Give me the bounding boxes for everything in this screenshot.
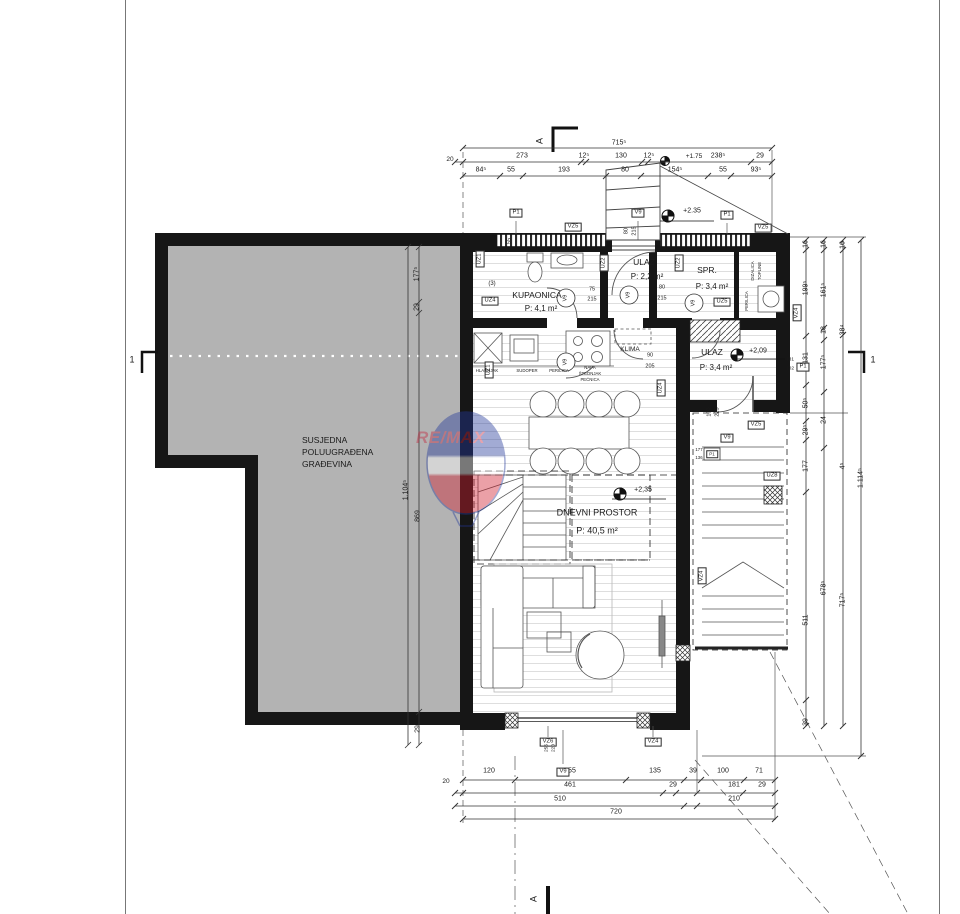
small-dim-label: 80 [624, 228, 630, 234]
dim-label: 20 [446, 157, 453, 164]
dim-label: 715⁵ [612, 140, 627, 147]
section-label: 1 [870, 356, 875, 365]
dim-label: 29⁵ [803, 425, 810, 436]
dim-label: 717⁵ [840, 593, 847, 608]
dim-label: 4⁵ [840, 463, 847, 470]
dim-label: 678⁵ [821, 581, 828, 596]
dim-label: 135 [649, 768, 661, 775]
dim-label: 177⁵ [414, 267, 421, 282]
room-label: ULAZ [633, 258, 655, 267]
dim-label: 154⁵ [668, 167, 683, 174]
room-label: P: 2,2 m² [631, 273, 663, 281]
dim-label: 84⁵ [476, 167, 487, 174]
dim-label: 71 [755, 768, 763, 775]
small-dim-label: 75 [589, 287, 595, 293]
dim-label: 93⁵ [751, 167, 762, 174]
dim-label: 869 [415, 510, 422, 522]
small-dim-label: 215 [632, 226, 638, 235]
fixture-label: ŠTEDNJAK [579, 372, 601, 376]
dim-label: 16 [840, 241, 847, 249]
dim-label: 29 [758, 782, 766, 789]
dim-label: 461 [564, 782, 576, 789]
box-label: VZ4 [645, 738, 662, 747]
neighbor-building-label: POLUUGRAĐENA [302, 448, 373, 457]
door-tag-label: V9 [563, 359, 569, 366]
box-label: UZ4 [482, 297, 499, 306]
dim-label: 24 [821, 416, 828, 424]
box-label: UZ2 [675, 255, 684, 272]
dim-label: 18 [821, 326, 828, 334]
small-dim-label: 255 [546, 744, 551, 752]
elevation-label: +2,09 [749, 348, 767, 355]
dim-label: 181 [728, 782, 740, 789]
small-dim-label: 80 [659, 285, 665, 291]
fixture-label: PERILICA [549, 369, 569, 373]
section-label: 1 [129, 356, 134, 365]
floor-plan-page: RE/MAX 715⁵2027312⁵13012⁵+1.75238⁵2984⁵5… [0, 0, 960, 914]
box-label: UZ1 [476, 251, 485, 268]
box-label: P1 [509, 209, 522, 218]
box-label: VZ4 [698, 568, 707, 585]
elevation-label: +2.35 [683, 208, 701, 215]
box-label: V9 [556, 768, 569, 777]
box-label: VZ5 [755, 224, 772, 233]
dim-label: 29 [415, 725, 422, 733]
dim-label: 29 [669, 782, 677, 789]
dim-label: 39 [689, 768, 697, 775]
room-label: KUPAONICA [512, 291, 561, 300]
box-label: P1 [706, 450, 718, 458]
dim-label: 16 [803, 240, 810, 248]
box-label: UZ2 [600, 255, 609, 272]
dim-label: 238⁵ [711, 153, 726, 160]
dim-label: 210 [728, 796, 740, 803]
dim-label: 12⁵ [644, 153, 655, 160]
box-label: V9 [631, 209, 644, 218]
box-label: UZ5 [714, 298, 731, 307]
section-label: A [536, 138, 545, 144]
room-label: P: 3,4 m² [696, 283, 728, 291]
dim-label: 16 [821, 240, 828, 248]
elevation-label: +2,35 [634, 487, 652, 494]
small-dim-label: 90 [647, 353, 653, 359]
door-tag-label: V9 [691, 300, 697, 307]
fixture-label: TOPLINE [758, 262, 762, 280]
fixture-label: PERILICA [745, 291, 749, 311]
room-label: P: 40,5 m² [576, 527, 618, 536]
box-label: UZ4 [657, 380, 666, 397]
small-dim-label: 100 [707, 407, 713, 416]
dim-label: 39 [803, 718, 810, 726]
neighbor-building-label: GRAĐEVINA [302, 460, 352, 469]
box-label: VZ5 [565, 223, 582, 232]
room-label: DNEVNI PROSTOR [557, 509, 638, 518]
dim-label: 55 [507, 167, 515, 174]
dim-label: +1.75 [686, 154, 702, 161]
dim-label: 12⁵ [579, 153, 590, 160]
dim-label: 511 [803, 614, 810, 625]
dim-label: 130 [615, 153, 627, 160]
box-label: V9 [720, 434, 733, 443]
fixture-label: PEĆNICA [580, 378, 599, 382]
small-dim-label: 131 [786, 359, 794, 364]
dim-label: 177⁵ [821, 355, 828, 370]
neighbor-building-label: SUSJEDNA [302, 436, 347, 445]
box-label: VZ5 [748, 421, 765, 430]
door-tag-label: V9 [563, 295, 569, 302]
dim-label: 20 [442, 779, 449, 786]
dim-label: 29 [414, 303, 421, 311]
box-label: UZ8 [764, 472, 781, 481]
dim-label: 177 [803, 460, 810, 472]
dim-label: 273 [516, 153, 528, 160]
dim-label: 50⁵ [803, 398, 810, 409]
dim-label: 80 [621, 167, 629, 174]
dim-label: 510 [554, 796, 566, 803]
dim-label: 120 [483, 768, 495, 775]
dim-label: 1.104⁵ [403, 480, 410, 500]
fixture-label: NAPA [584, 366, 595, 370]
box-label: VZ4 [793, 305, 802, 322]
fixture-label: DIZALICA [751, 261, 755, 280]
box-label: P1 [720, 211, 733, 220]
door-tag-label: V9 [626, 292, 632, 299]
small-dim-label: 55 [507, 238, 513, 244]
small-dim-label: 102 [786, 368, 794, 373]
dim-label: 100 [717, 768, 729, 775]
small-dim-label: 215 [657, 296, 666, 302]
dim-label: 55 [719, 167, 727, 174]
small-dim-label: 205 [645, 364, 654, 370]
annotation-layer: 715⁵2027312⁵13012⁵+1.75238⁵2984⁵55193801… [0, 0, 960, 914]
room-label: P: 4,1 m² [525, 305, 557, 313]
room-label: ULAZ [701, 348, 723, 357]
room-label: KLIMA [620, 347, 640, 354]
dim-label: 193 [558, 167, 570, 174]
small-dim-label: 177 [695, 448, 702, 452]
fixture-label: HLADNJAK [476, 369, 498, 373]
small-dim-label: (3) [488, 281, 495, 287]
dim-label: 1.114⁵ [858, 468, 865, 488]
box-label: P1 [796, 363, 809, 372]
small-dim-label: 215 [587, 297, 596, 303]
fixture-label: SUDOPER [516, 369, 537, 373]
room-label: P: 3,4 m² [700, 364, 732, 372]
small-dim-label: 223 [715, 407, 721, 416]
dim-label: 720 [610, 809, 622, 816]
dim-label: 161⁵ [821, 283, 828, 298]
dim-label: 38⁴ [840, 325, 847, 336]
small-dim-label: 136 [695, 456, 702, 460]
section-label: A [530, 896, 539, 902]
small-dim-label: 220 [553, 744, 558, 752]
dim-label: 199⁵ [803, 281, 810, 296]
dim-label: 29 [756, 153, 764, 160]
room-label: SPR. [697, 266, 717, 275]
